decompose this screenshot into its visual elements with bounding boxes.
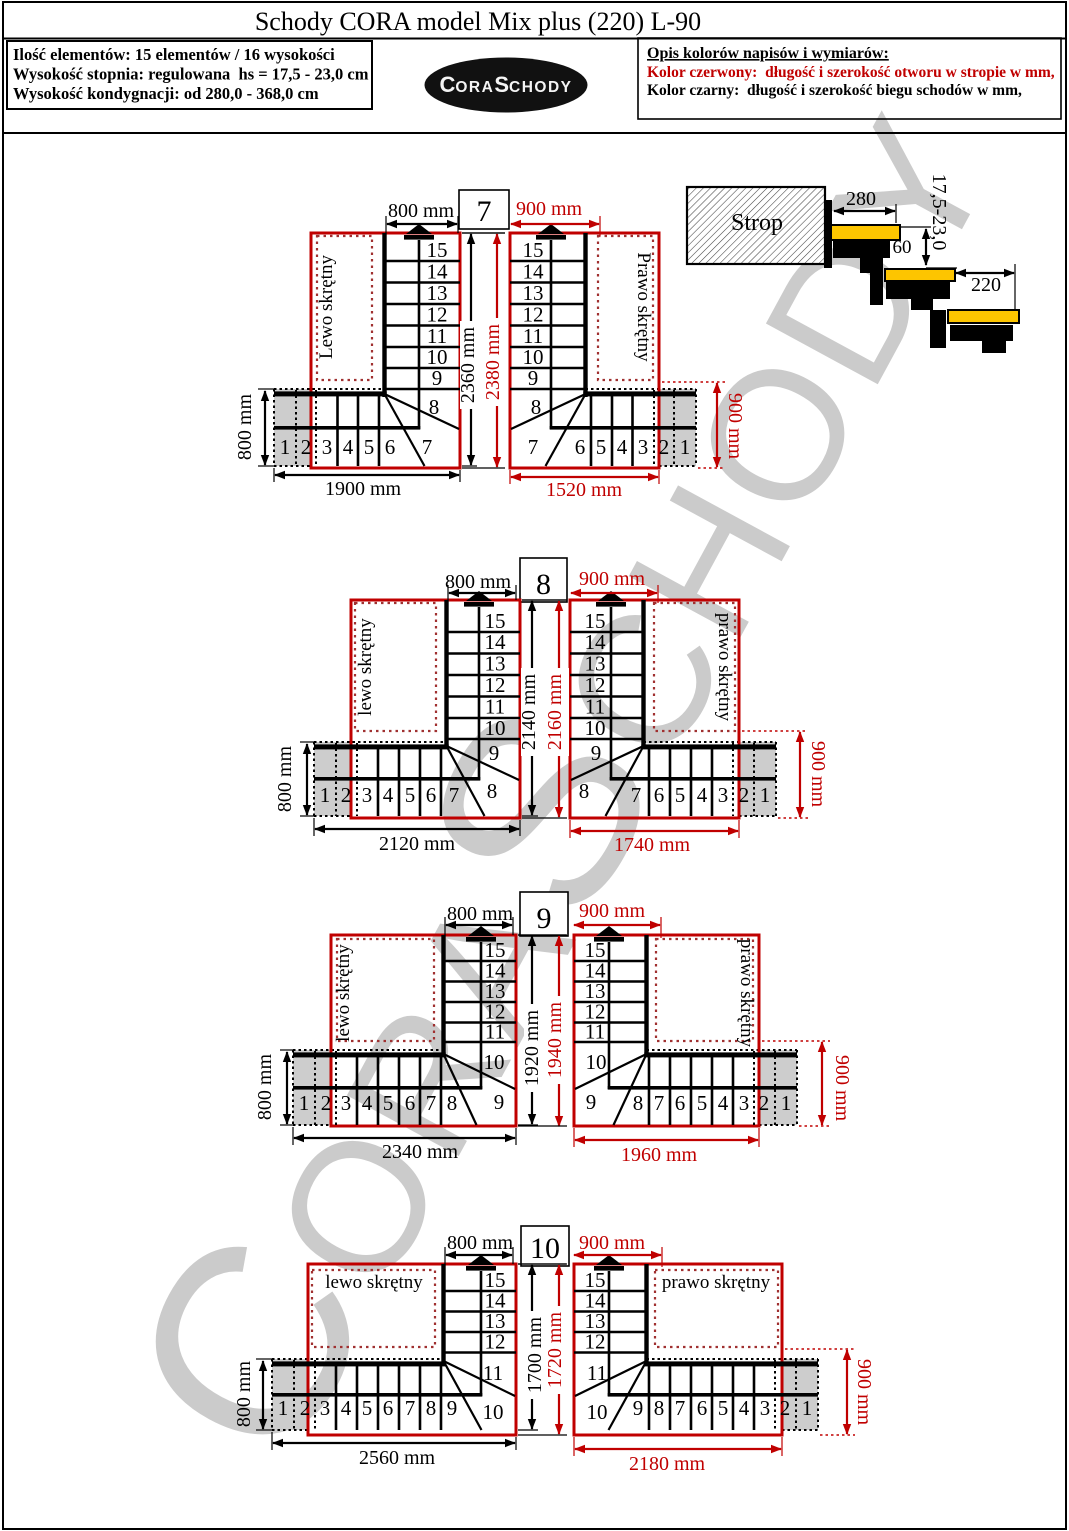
svg-text:3: 3 (322, 435, 333, 459)
svg-text:1: 1 (278, 1396, 289, 1420)
svg-text:7: 7 (477, 195, 492, 228)
svg-text:800 mm: 800 mm (274, 746, 296, 813)
svg-text:11: 11 (587, 1361, 607, 1385)
svg-text:Prawo skrętny: Prawo skrętny (633, 252, 654, 362)
svg-text:1: 1 (802, 1396, 813, 1420)
svg-text:8: 8 (654, 1396, 665, 1420)
svg-text:Ilość elementów: 15 elementów: Ilość elementów: 15 elementów / 16 wysok… (13, 45, 335, 64)
svg-text:12: 12 (485, 1330, 506, 1354)
svg-text:5: 5 (675, 783, 686, 807)
svg-text:3: 3 (341, 1091, 352, 1115)
svg-text:1940 mm: 1940 mm (544, 1002, 566, 1079)
svg-text:lewo skrętny: lewo skrętny (333, 944, 354, 1042)
svg-text:4: 4 (697, 783, 708, 807)
svg-text:7: 7 (631, 783, 642, 807)
svg-text:4: 4 (383, 783, 394, 807)
svg-text:4: 4 (718, 1091, 729, 1115)
svg-text:800 mm: 800 mm (254, 1054, 276, 1121)
svg-text:1700 mm: 1700 mm (524, 1317, 546, 1394)
svg-text:8: 8 (633, 1091, 644, 1115)
svg-text:2340 mm: 2340 mm (382, 1141, 459, 1163)
svg-text:8: 8 (579, 779, 590, 803)
svg-text:800 mm: 800 mm (233, 1361, 255, 1428)
svg-text:6: 6 (405, 1091, 416, 1115)
svg-text:5: 5 (697, 1091, 708, 1115)
svg-text:4: 4 (341, 1396, 352, 1420)
svg-text:9: 9 (447, 1396, 458, 1420)
svg-text:4: 4 (739, 1396, 750, 1420)
svg-text:7: 7 (405, 1396, 416, 1420)
svg-text:lewo skrętny: lewo skrętny (325, 1272, 423, 1293)
svg-text:12: 12 (523, 303, 544, 327)
svg-text:7: 7 (528, 435, 539, 459)
svg-text:900 mm: 900 mm (579, 1232, 646, 1254)
svg-text:1520 mm: 1520 mm (546, 479, 623, 501)
svg-text:6: 6 (383, 1396, 394, 1420)
svg-text:1960 mm: 1960 mm (621, 1144, 698, 1166)
svg-text:7: 7 (422, 435, 433, 459)
svg-text:2560 mm: 2560 mm (359, 1447, 436, 1469)
svg-text:6: 6 (654, 783, 665, 807)
svg-text:5: 5 (405, 783, 416, 807)
svg-text:2160 mm: 2160 mm (544, 674, 566, 751)
svg-text:2180 mm: 2180 mm (629, 1453, 706, 1475)
svg-text:Opis kolorów napisów i wymiaró: Opis kolorów napisów i wymiarów: (647, 45, 889, 62)
svg-text:1: 1 (299, 1091, 310, 1115)
svg-text:9: 9 (633, 1396, 644, 1420)
svg-text:1: 1 (320, 783, 331, 807)
svg-text:9: 9 (586, 1090, 597, 1114)
svg-text:800 mm: 800 mm (388, 200, 455, 222)
svg-text:10: 10 (586, 1050, 607, 1074)
svg-text:11: 11 (585, 1020, 605, 1044)
svg-text:7: 7 (449, 783, 460, 807)
svg-text:12: 12 (485, 673, 506, 697)
svg-text:900 mm: 900 mm (831, 1055, 853, 1122)
svg-text:1740 mm: 1740 mm (614, 834, 691, 856)
svg-text:2: 2 (321, 1091, 332, 1115)
svg-text:8: 8 (426, 1396, 437, 1420)
svg-text:3: 3 (739, 1091, 750, 1115)
svg-text:7: 7 (426, 1091, 437, 1115)
svg-text:12: 12 (585, 1330, 606, 1354)
svg-text:900 mm: 900 mm (579, 900, 646, 922)
svg-text:10: 10 (587, 1400, 608, 1424)
svg-text:13: 13 (585, 652, 606, 676)
svg-text:12: 12 (427, 303, 448, 327)
svg-text:10: 10 (585, 716, 606, 740)
svg-text:14: 14 (585, 630, 607, 654)
svg-text:6: 6 (575, 435, 586, 459)
svg-text:11: 11 (585, 695, 605, 719)
svg-text:6: 6 (385, 435, 396, 459)
svg-text:2140 mm: 2140 mm (518, 674, 540, 751)
svg-text:2: 2 (341, 783, 352, 807)
svg-text:3: 3 (718, 783, 729, 807)
svg-text:11: 11 (485, 695, 505, 719)
svg-text:10: 10 (484, 1050, 505, 1074)
svg-text:2: 2 (659, 435, 670, 459)
svg-text:2120 mm: 2120 mm (379, 833, 456, 855)
svg-text:2380 mm: 2380 mm (482, 324, 504, 401)
svg-text:2: 2 (300, 1396, 311, 1420)
svg-text:60: 60 (893, 237, 912, 258)
svg-text:7: 7 (654, 1091, 665, 1115)
svg-text:13: 13 (485, 652, 506, 676)
svg-text:prawo skrętny: prawo skrętny (662, 1272, 771, 1293)
svg-text:2: 2 (759, 1091, 770, 1115)
svg-text:900 mm: 900 mm (724, 393, 746, 460)
svg-text:3: 3 (638, 435, 649, 459)
svg-text:1: 1 (280, 435, 291, 459)
svg-text:11: 11 (485, 1020, 505, 1044)
svg-text:10: 10 (530, 1232, 560, 1265)
svg-text:14: 14 (427, 260, 449, 284)
svg-text:8: 8 (531, 395, 542, 419)
svg-text:8: 8 (429, 395, 440, 419)
svg-text:9: 9 (591, 741, 602, 765)
svg-text:800 mm: 800 mm (234, 394, 256, 461)
svg-text:10: 10 (485, 716, 506, 740)
svg-text:3: 3 (362, 783, 373, 807)
svg-text:5: 5 (596, 435, 607, 459)
svg-text:3: 3 (320, 1396, 331, 1420)
svg-text:900 mm: 900 mm (579, 568, 646, 590)
svg-text:800 mm: 800 mm (447, 1232, 514, 1254)
svg-text:220: 220 (971, 274, 1001, 296)
svg-text:9: 9 (537, 902, 552, 935)
svg-text:8: 8 (447, 1091, 458, 1115)
svg-text:5: 5 (364, 435, 375, 459)
svg-text:11: 11 (483, 1361, 503, 1385)
svg-text:7: 7 (675, 1396, 686, 1420)
svg-text:1: 1 (680, 435, 691, 459)
svg-text:17,5-23,0: 17,5-23,0 (928, 174, 950, 251)
svg-text:900 mm: 900 mm (807, 741, 829, 808)
svg-text:15: 15 (427, 238, 448, 262)
svg-text:2: 2 (780, 1396, 791, 1420)
svg-text:Kolor czarny: długość i szero: Kolor czarny: długość i szerokość biegu … (647, 82, 1022, 99)
svg-text:13: 13 (523, 281, 544, 305)
svg-text:900 mm: 900 mm (853, 1359, 875, 1426)
svg-text:1720 mm: 1720 mm (544, 1312, 566, 1389)
svg-text:12: 12 (585, 673, 606, 697)
svg-text:4: 4 (362, 1091, 373, 1115)
svg-text:9: 9 (432, 366, 443, 390)
svg-text:2360 mm: 2360 mm (457, 327, 479, 404)
svg-text:15: 15 (523, 238, 544, 262)
svg-text:8: 8 (536, 568, 551, 601)
svg-text:14: 14 (485, 630, 507, 654)
svg-text:5: 5 (383, 1091, 394, 1115)
svg-text:10: 10 (483, 1400, 504, 1424)
svg-text:6: 6 (675, 1091, 686, 1115)
svg-text:800 mm: 800 mm (445, 571, 512, 593)
svg-text:prawo skrętny: prawo skrętny (714, 613, 735, 722)
svg-text:1: 1 (781, 1091, 792, 1115)
svg-text:1900 mm: 1900 mm (325, 478, 402, 500)
svg-text:280: 280 (846, 188, 876, 210)
svg-text:lewo skrętny: lewo skrętny (355, 618, 376, 716)
svg-text:6: 6 (697, 1396, 708, 1420)
svg-text:8: 8 (487, 779, 498, 803)
svg-text:5: 5 (718, 1396, 729, 1420)
svg-text:Wysokość stopnia: regulowana: Wysokość stopnia: regulowana hs = 17,5 -… (13, 65, 369, 84)
svg-text:13: 13 (427, 281, 448, 305)
svg-text:9: 9 (528, 366, 539, 390)
svg-text:Kolor czerwony: długość i sze: Kolor czerwony: długość i szerokość otwo… (647, 64, 1055, 81)
svg-text:Wysokość kondygnacji: od 280,0: Wysokość kondygnacji: od 280,0 - 368,0 c… (13, 84, 319, 103)
svg-text:2: 2 (739, 783, 750, 807)
svg-text:9: 9 (489, 741, 500, 765)
svg-text:14: 14 (523, 260, 545, 284)
svg-text:6: 6 (426, 783, 437, 807)
svg-text:4: 4 (617, 435, 628, 459)
svg-text:900 mm: 900 mm (516, 198, 583, 220)
svg-text:9: 9 (494, 1090, 505, 1114)
svg-text:1: 1 (760, 783, 771, 807)
svg-text:prawo skrętny: prawo skrętny (736, 939, 757, 1048)
svg-text:3: 3 (760, 1396, 771, 1420)
svg-text:4: 4 (343, 435, 354, 459)
svg-text:Schody CORA model Mix plus (22: Schody CORA model Mix plus (220) L-90 (255, 7, 701, 36)
svg-text:Lewo skrętny: Lewo skrętny (316, 255, 337, 359)
svg-text:2: 2 (301, 435, 312, 459)
svg-text:5: 5 (362, 1396, 373, 1420)
svg-text:1920 mm: 1920 mm (521, 1010, 543, 1087)
svg-text:Strop: Strop (731, 210, 783, 236)
